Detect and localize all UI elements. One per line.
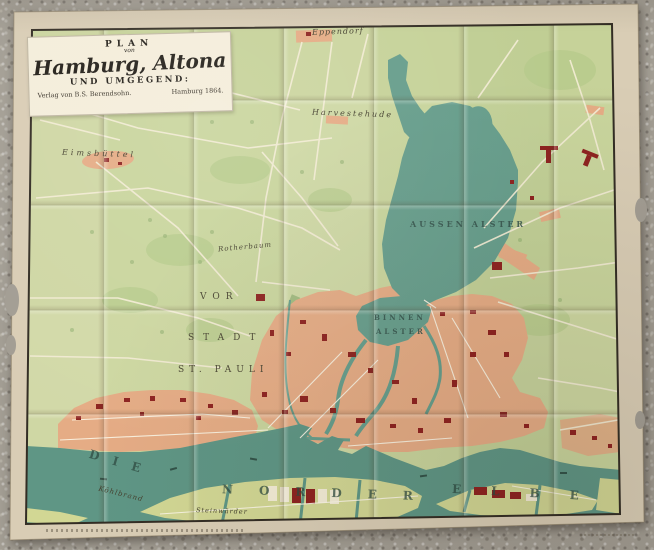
imprint-microtext-right [580,534,634,536]
title-cartouche: PLAN von Hamburg, Altona UND UMGEGEND: V… [27,31,233,117]
publisher: Verlag von B.S. Berendsohn. [37,89,131,100]
edition: Hamburg 1864. [171,86,223,95]
photo-of-antique-map: PLAN von Hamburg, Altona UND UMGEGEND: V… [0,0,654,550]
imprint-microtext [46,529,246,532]
